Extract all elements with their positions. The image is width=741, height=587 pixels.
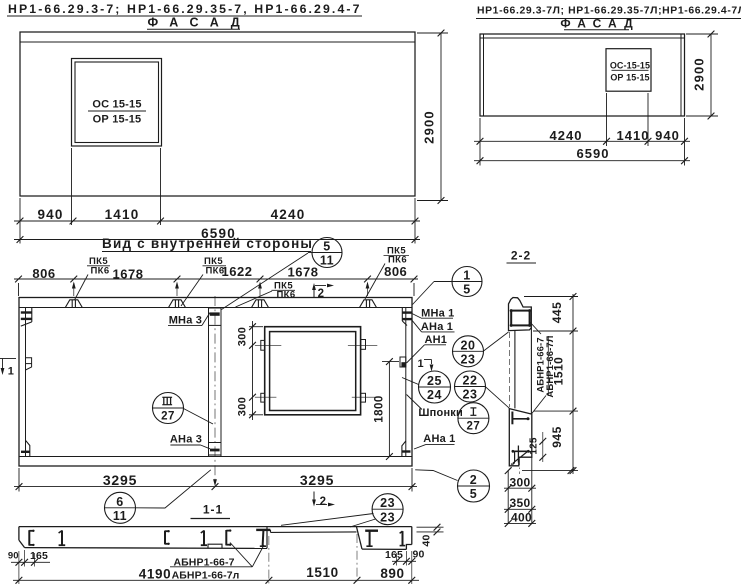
svg-text:АБНР1-66-7л: АБНР1-66-7л: [172, 569, 240, 581]
svg-text:165: 165: [385, 549, 403, 561]
svg-text:165: 165: [30, 550, 48, 562]
svg-text:ОР 15-15: ОР 15-15: [93, 114, 142, 126]
svg-text:4240: 4240: [550, 128, 583, 143]
svg-text:806: 806: [32, 266, 55, 281]
svg-text:1: 1: [463, 269, 470, 283]
svg-text:400: 400: [511, 511, 532, 525]
svg-text:20: 20: [461, 338, 476, 352]
svg-text:ПК6: ПК6: [205, 266, 224, 277]
svg-text:40: 40: [421, 534, 433, 546]
svg-text:1: 1: [417, 358, 423, 370]
svg-text:2: 2: [320, 496, 326, 508]
svg-text:3295: 3295: [103, 472, 137, 488]
svg-text:ОР 15-15: ОР 15-15: [610, 73, 649, 83]
svg-text:1510: 1510: [306, 565, 338, 580]
svg-text:ФАСАД: ФАСАД: [560, 16, 639, 30]
svg-text:1-1: 1-1: [203, 503, 223, 517]
svg-text:1: 1: [8, 366, 14, 378]
svg-text:940: 940: [655, 128, 680, 143]
svg-text:Шпонки: Шпонки: [418, 407, 463, 419]
svg-text:ПК6: ПК6: [90, 266, 109, 277]
svg-text:ФАСАД: ФАСАД: [147, 16, 251, 30]
svg-text:АН1: АН1: [424, 334, 447, 346]
svg-text:890: 890: [380, 566, 404, 581]
svg-text:125: 125: [529, 437, 540, 455]
svg-text:22: 22: [463, 374, 478, 388]
svg-text:МНа 3: МНа 3: [169, 315, 202, 327]
svg-text:6590: 6590: [577, 146, 610, 161]
svg-text:23: 23: [380, 496, 395, 510]
svg-text:25: 25: [427, 374, 442, 388]
svg-text:90: 90: [8, 551, 19, 562]
svg-text:ПК6: ПК6: [388, 255, 407, 266]
svg-text:4240: 4240: [271, 207, 306, 222]
svg-text:МНа 1: МНа 1: [421, 308, 454, 320]
svg-text:2900: 2900: [692, 57, 707, 91]
svg-text:Вид с внутренней стороны: Вид с внутренней стороны: [102, 236, 313, 251]
svg-text:27: 27: [161, 411, 175, 423]
svg-text:27: 27: [467, 421, 481, 433]
svg-text:5: 5: [463, 283, 470, 297]
svg-text:ОС-15-15: ОС-15-15: [610, 60, 650, 70]
svg-text:2: 2: [318, 288, 324, 300]
svg-text:АНа 1: АНа 1: [421, 321, 453, 333]
svg-text:806: 806: [384, 264, 407, 279]
svg-text:940: 940: [37, 207, 63, 222]
svg-text:АНа 3: АНа 3: [170, 433, 202, 445]
svg-text:1800: 1800: [374, 395, 386, 423]
svg-text:24: 24: [427, 388, 442, 402]
svg-text:1622: 1622: [222, 264, 253, 279]
svg-text:300: 300: [237, 397, 249, 417]
svg-text:11: 11: [320, 254, 334, 268]
svg-text:23: 23: [463, 388, 478, 402]
svg-text:1410: 1410: [617, 128, 650, 143]
svg-text:23: 23: [461, 353, 476, 367]
svg-text:1678: 1678: [113, 267, 144, 282]
svg-text:НР1-66.29.3-7Л; НР1-66.29.35-7: НР1-66.29.3-7Л; НР1-66.29.35-7Л;НР1-66.2…: [477, 6, 741, 17]
svg-text:350: 350: [510, 496, 531, 510]
svg-text:АНа 1: АНа 1: [423, 433, 455, 445]
svg-text:НР1-66.29.3-7; НР1-66.29.35-7: НР1-66.29.3-7; НР1-66.29.35-7, НР1-66.29…: [8, 2, 362, 16]
svg-text:23: 23: [380, 510, 395, 524]
svg-text:2: 2: [470, 473, 477, 487]
svg-text:945: 945: [550, 426, 564, 448]
svg-text:6: 6: [116, 495, 123, 509]
svg-text:1410: 1410: [105, 207, 140, 222]
svg-text:300: 300: [510, 476, 531, 490]
svg-text:300: 300: [237, 327, 249, 347]
svg-text:445: 445: [550, 302, 564, 324]
svg-text:ОС 15-15: ОС 15-15: [92, 99, 141, 111]
svg-text:1678: 1678: [288, 265, 319, 280]
svg-text:АБНР1-66-7Л: АБНР1-66-7Л: [545, 335, 556, 397]
svg-text:3295: 3295: [300, 472, 334, 488]
svg-text:4190: 4190: [139, 567, 171, 582]
svg-text:5: 5: [470, 487, 477, 501]
svg-text:2-2: 2-2: [511, 249, 531, 263]
svg-text:11: 11: [113, 509, 127, 523]
svg-text:2900: 2900: [422, 110, 437, 144]
svg-text:ПК6: ПК6: [276, 290, 295, 301]
svg-text:5: 5: [323, 240, 330, 254]
